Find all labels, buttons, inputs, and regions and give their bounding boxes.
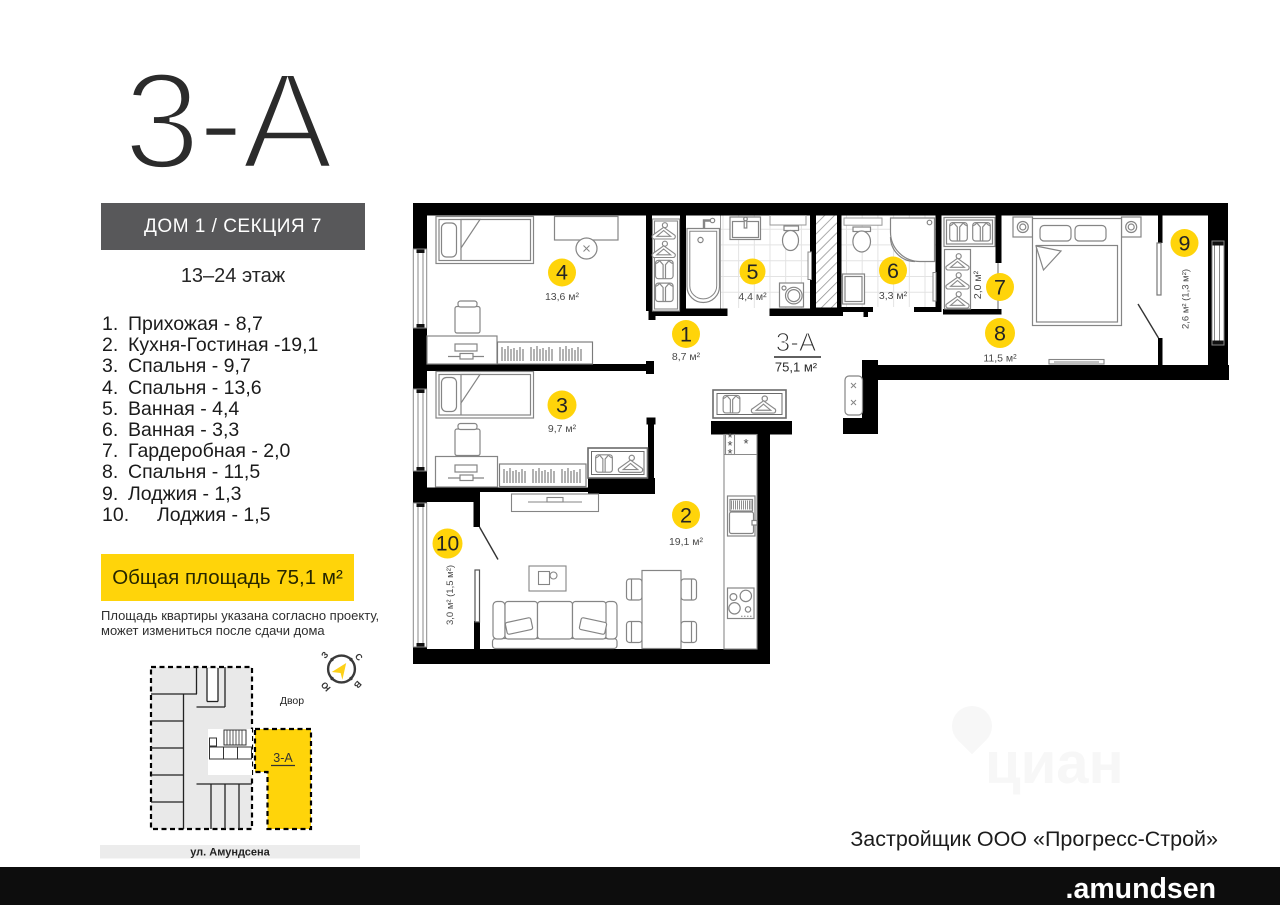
svg-text:9,7 м²: 9,7 м² bbox=[548, 423, 577, 435]
svg-text:6: 6 bbox=[887, 259, 899, 283]
svg-text:*: * bbox=[727, 446, 732, 461]
svg-text:Двор: Двор bbox=[280, 695, 304, 707]
svg-text:4: 4 bbox=[556, 261, 568, 285]
svg-text:2,6 м² (1,3 м²): 2,6 м² (1,3 м²) bbox=[1181, 269, 1192, 329]
svg-text:10: 10 bbox=[436, 533, 459, 556]
svg-text:3,0 м² (1,5 м²): 3,0 м² (1,5 м²) bbox=[445, 565, 456, 625]
svg-text:5: 5 bbox=[747, 260, 759, 284]
svg-text:1: 1 bbox=[680, 323, 692, 347]
svg-text:3-А: 3-А bbox=[273, 751, 293, 765]
svg-text:19,1 м²: 19,1 м² bbox=[669, 536, 704, 548]
svg-text:13,6 м²: 13,6 м² bbox=[545, 291, 580, 303]
svg-text:7: 7 bbox=[994, 276, 1006, 300]
svg-text:2,0 м²: 2,0 м² bbox=[972, 270, 984, 299]
svg-text:75,1 м²: 75,1 м² bbox=[775, 360, 818, 375]
svg-text:ул. Амундсена: ул. Амундсена bbox=[190, 847, 270, 859]
svg-text:2: 2 bbox=[680, 504, 692, 528]
svg-text:3,3 м²: 3,3 м² bbox=[879, 290, 908, 302]
svg-text:С: С bbox=[353, 651, 365, 663]
svg-text:3: 3 bbox=[556, 394, 568, 418]
svg-text:4,4 м²: 4,4 м² bbox=[738, 291, 767, 303]
svg-text:9: 9 bbox=[1179, 232, 1191, 256]
svg-text:8: 8 bbox=[994, 322, 1006, 346]
svg-text:*: * bbox=[743, 436, 748, 451]
svg-text:8,7 м²: 8,7 м² bbox=[672, 351, 701, 363]
svg-text:В: В bbox=[352, 679, 364, 691]
svg-text:3-А: 3-А bbox=[776, 327, 817, 357]
svg-text:З: З bbox=[319, 649, 330, 660]
svg-text:Ю: Ю bbox=[319, 680, 333, 694]
svg-text:11,5 м²: 11,5 м² bbox=[983, 353, 1017, 365]
